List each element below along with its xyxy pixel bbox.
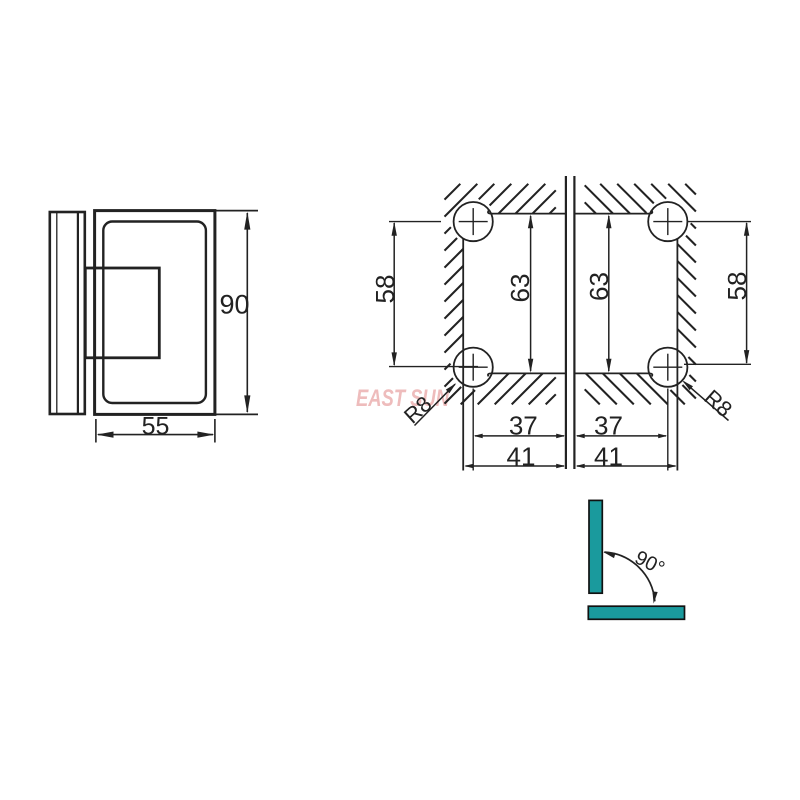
svg-text:55: 55 [142, 413, 170, 441]
svg-text:63: 63 [505, 274, 535, 303]
svg-text:41: 41 [594, 442, 623, 472]
svg-text:41: 41 [507, 442, 536, 472]
svg-text:58: 58 [722, 272, 752, 301]
svg-text:63: 63 [584, 272, 614, 301]
svg-text:37: 37 [509, 411, 538, 441]
svg-text:58: 58 [370, 275, 400, 304]
svg-text:R8: R8 [699, 385, 737, 422]
svg-text:90: 90 [219, 290, 249, 320]
svg-text:90°: 90° [631, 547, 668, 580]
svg-text:37: 37 [594, 411, 623, 441]
